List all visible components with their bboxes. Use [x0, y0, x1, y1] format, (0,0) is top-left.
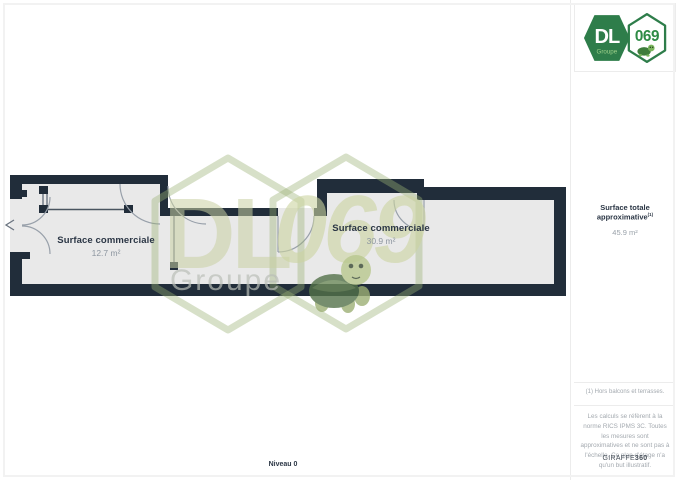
brand-suffix: 360	[635, 455, 648, 462]
surface-total-title: Surface totale approximative(1)	[571, 203, 678, 222]
logo-dl-text: DL	[594, 25, 620, 47]
sidebar: DL Groupe 069 Surface totale approximati…	[570, 0, 678, 480]
giraffe360-brand: GIRAFFE360	[571, 455, 678, 462]
footnote: (1) Hors balcons et terrasses.	[571, 389, 678, 395]
level-label: Niveau 0	[269, 461, 298, 468]
sidebar-divider	[574, 382, 674, 383]
logo-box: DL Groupe 069	[574, 3, 676, 72]
surface-total-value: 45.9 m²	[571, 228, 678, 237]
sidebar-divider	[574, 405, 674, 406]
brand-name: GIRAFFE	[602, 455, 634, 462]
floor-plan-area: DL Groupe 069 Surface commerciale 12.7 m…	[0, 0, 570, 480]
dl-groupe-logo: DL Groupe 069	[583, 12, 667, 64]
room-name: Surface commerciale	[57, 235, 154, 246]
surface-total-superscript: (1)	[648, 212, 654, 217]
room-label: Surface commerciale 12.7 m²	[57, 235, 154, 258]
surface-total-title-text: Surface totale approximative	[597, 203, 650, 222]
watermark-groupe-text: Groupe	[170, 264, 282, 297]
logo-069-text: 069	[635, 27, 659, 44]
room-label: Surface commerciale 30.9 m²	[332, 223, 429, 246]
room-area: 30.9 m²	[332, 236, 429, 246]
room-area: 12.7 m²	[57, 248, 154, 258]
room-name: Surface commerciale	[332, 223, 429, 234]
logo-groupe-text: Groupe	[597, 48, 618, 55]
surface-total-section: Surface totale approximative(1) 45.9 m²	[571, 203, 678, 237]
